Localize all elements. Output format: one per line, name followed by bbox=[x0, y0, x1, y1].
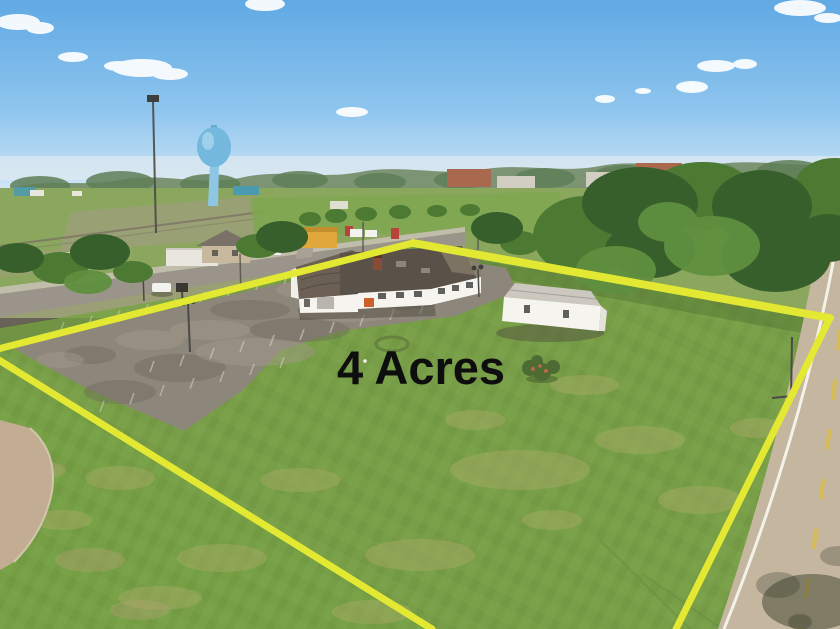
cloud bbox=[676, 81, 708, 93]
building-window bbox=[414, 291, 422, 297]
building-window bbox=[304, 299, 310, 307]
brick-building bbox=[447, 169, 491, 187]
rooftop-unit bbox=[396, 261, 406, 267]
rooftop-unit bbox=[421, 268, 430, 273]
tree bbox=[460, 204, 480, 216]
stadium-light-head bbox=[147, 95, 159, 102]
cloud bbox=[152, 68, 188, 80]
outbuilding-window bbox=[524, 305, 530, 313]
dry-patch bbox=[595, 426, 685, 454]
dry-patch bbox=[550, 375, 620, 395]
bush bbox=[546, 360, 560, 374]
dry-patch bbox=[260, 468, 340, 492]
cloud bbox=[697, 60, 735, 72]
building-window bbox=[438, 288, 445, 294]
light-head bbox=[479, 265, 484, 270]
white-building bbox=[30, 190, 44, 196]
flower bbox=[538, 364, 542, 368]
flower bbox=[544, 369, 548, 373]
asphalt-blotch bbox=[210, 300, 290, 320]
tree bbox=[64, 270, 112, 294]
brown-patch bbox=[55, 548, 125, 572]
tree bbox=[427, 205, 447, 217]
dry-patch bbox=[450, 450, 590, 490]
white-shed bbox=[330, 201, 348, 209]
cloud bbox=[733, 59, 757, 69]
orange-equipment bbox=[364, 298, 374, 307]
cloud bbox=[774, 0, 826, 16]
asphalt-blotch bbox=[36, 352, 84, 368]
tree bbox=[355, 207, 377, 221]
water-tower-highlight bbox=[202, 132, 214, 150]
building-window bbox=[396, 292, 404, 298]
white-truck bbox=[365, 230, 377, 237]
dry-patch bbox=[522, 510, 582, 530]
dry-patch bbox=[658, 486, 742, 514]
cloud bbox=[26, 22, 54, 34]
light-pole bbox=[478, 269, 479, 297]
maroon-shed bbox=[391, 228, 399, 239]
cloud bbox=[58, 52, 88, 62]
outbuilding bbox=[496, 283, 607, 342]
business-sign bbox=[176, 283, 188, 292]
brown-patch bbox=[110, 600, 170, 620]
aerial-property-photo: 4 Acres bbox=[0, 0, 840, 629]
dry-patch bbox=[365, 539, 475, 571]
white-suv bbox=[152, 283, 171, 292]
outbuilding-window bbox=[563, 310, 569, 318]
gray-building bbox=[497, 176, 535, 188]
flower bbox=[531, 367, 535, 371]
building-window bbox=[378, 293, 386, 299]
garage-door bbox=[317, 297, 334, 309]
tree bbox=[70, 234, 130, 270]
asphalt-blotch bbox=[84, 380, 156, 404]
cloud bbox=[104, 61, 132, 71]
tree bbox=[325, 209, 347, 223]
teal-building bbox=[233, 186, 259, 195]
asphalt-blotch bbox=[170, 320, 250, 340]
house-window bbox=[232, 250, 238, 256]
tree bbox=[299, 212, 321, 226]
dry-patch bbox=[177, 544, 267, 572]
cloud bbox=[336, 107, 368, 117]
cloud bbox=[595, 95, 615, 103]
building-window bbox=[466, 282, 473, 288]
tree bbox=[256, 221, 308, 253]
dry-patch bbox=[85, 466, 155, 490]
distant-tree bbox=[272, 171, 328, 189]
white-building bbox=[72, 191, 82, 196]
cloud bbox=[635, 88, 651, 94]
tree bbox=[471, 212, 523, 244]
building-window bbox=[452, 285, 459, 291]
acreage-label: 4 Acres bbox=[337, 341, 505, 394]
light-head bbox=[472, 266, 477, 271]
dry-patch bbox=[445, 410, 505, 430]
tree-shadow bbox=[756, 572, 800, 598]
water-tower-tank bbox=[197, 127, 231, 167]
house-window bbox=[212, 250, 218, 256]
tree bbox=[638, 202, 698, 242]
scene-canvas: 4 Acres bbox=[0, 0, 840, 629]
tree bbox=[389, 205, 411, 219]
white-truck bbox=[350, 229, 363, 237]
